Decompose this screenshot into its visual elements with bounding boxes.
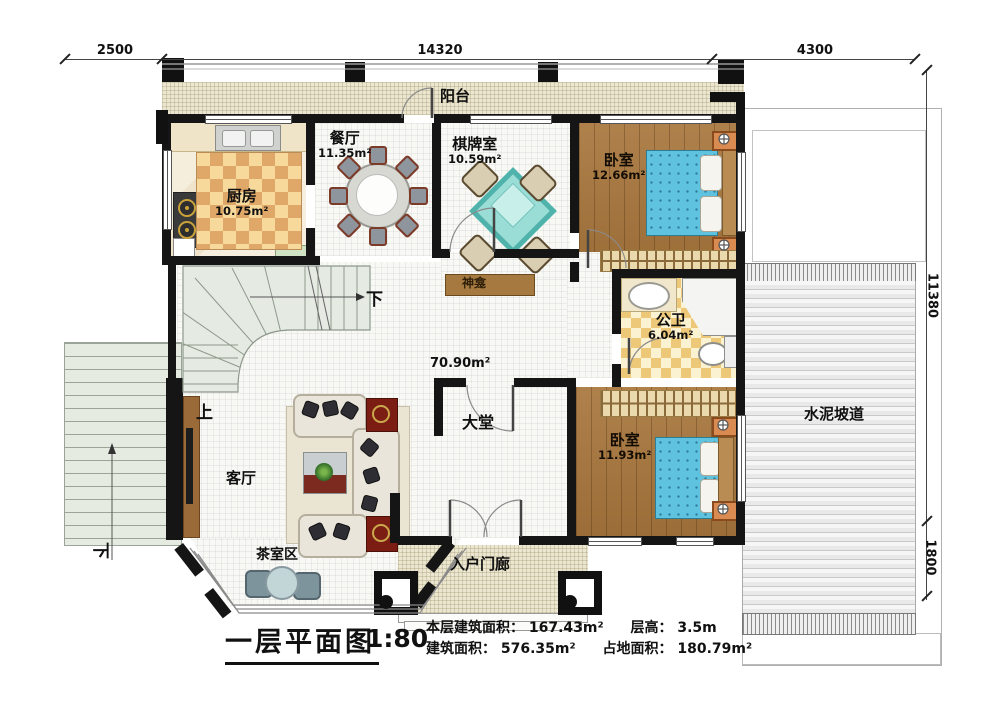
wall-segment	[567, 378, 576, 545]
wall-segment	[168, 260, 176, 380]
shrine-shelf	[445, 274, 535, 296]
hall-label: 大堂	[462, 414, 494, 432]
wall-segment	[612, 269, 621, 334]
floor-plan: 阳台 餐厅11.35m² 厨房10.75m² 棋牌室10.59m² 卧室12.6…	[0, 0, 1000, 706]
sink-basin	[222, 130, 246, 147]
dining-chair	[409, 187, 428, 205]
dim-top-mid: 14320	[405, 43, 475, 58]
wall-segment	[306, 123, 315, 185]
dining-chair	[369, 146, 387, 165]
dining-label: 餐厅11.35m²	[318, 130, 371, 160]
dim-tick	[921, 64, 932, 75]
corner-shelf	[173, 238, 195, 258]
column	[718, 60, 744, 84]
dim-right-upper: 11380	[925, 272, 940, 320]
dim-top-left: 2500	[85, 43, 145, 58]
wall-segment	[162, 256, 320, 265]
plan-scale: 1:80	[366, 624, 428, 653]
stats-row-2: 建筑面积： 576.35m² 占地面积： 180.79m²	[426, 639, 774, 660]
wall-segment	[432, 249, 450, 258]
window	[205, 115, 292, 124]
wall-segment	[434, 386, 443, 436]
dining-chair	[329, 187, 348, 205]
tea-table	[265, 566, 299, 600]
wall-segment	[612, 269, 745, 278]
bedroom2-wardrobe	[600, 390, 736, 417]
wall-jog	[156, 110, 168, 144]
bed2-pillow	[700, 442, 720, 476]
sink-basin	[250, 130, 274, 147]
column	[162, 58, 184, 82]
porch-column	[374, 571, 418, 615]
bed1-pillow	[700, 196, 722, 232]
porch-label: 入户门廊	[450, 556, 510, 573]
wall-segment	[432, 123, 441, 258]
ramp-label: 水泥坡道	[804, 406, 864, 423]
wall-jog	[736, 92, 745, 120]
nightstand	[712, 417, 738, 437]
dim-top-right: 4300	[785, 43, 845, 58]
hall-area-label: 70.90m²	[430, 356, 490, 371]
wall-segment	[612, 364, 621, 387]
plant	[315, 463, 333, 481]
bedroom1-label: 卧室12.66m²	[592, 152, 645, 182]
wall-segment	[494, 249, 579, 258]
bath-sink	[628, 282, 670, 310]
living-label: 客厅	[226, 470, 256, 487]
dim-right-lower: 1800	[923, 538, 938, 578]
bedroom2-label: 卧室11.93m²	[598, 432, 651, 462]
stats-row-1: 本层建筑面积： 167.43m² 层高： 3.5m	[426, 618, 774, 639]
column	[538, 62, 558, 82]
tea-label: 茶室区	[256, 548, 298, 564]
wall-segment	[570, 123, 579, 233]
dimension-line-top	[65, 59, 915, 60]
porch-column	[558, 571, 602, 615]
wall-segment	[306, 228, 315, 265]
sofa-cushion	[362, 466, 381, 485]
wall-segment	[570, 262, 579, 282]
window	[737, 152, 746, 232]
stair-down-label: 下	[366, 285, 383, 310]
bath-label: 公卫6.04m²	[648, 312, 693, 342]
sofa-cushion	[339, 400, 359, 420]
tv	[186, 428, 193, 504]
bed1-headboard	[722, 150, 737, 236]
sofa-cushion	[322, 400, 340, 418]
shrine-label: 神龛	[462, 277, 486, 290]
cement-ramp	[742, 281, 916, 613]
sofa-cushion	[332, 522, 351, 541]
column	[345, 62, 365, 82]
window	[737, 415, 746, 502]
window	[470, 115, 552, 124]
sofa-cushion	[359, 437, 380, 458]
sofa-cushion	[360, 494, 378, 512]
dining-chair	[369, 227, 387, 246]
ext-stair-down-label: 下	[90, 542, 115, 559]
kitchen-sink	[215, 125, 281, 151]
sofa-cushion	[301, 400, 320, 419]
terrace-inner	[752, 130, 926, 262]
stair-up-label: 上	[196, 398, 213, 423]
dining-table-top	[356, 174, 398, 216]
window	[600, 115, 712, 124]
nightstand	[712, 501, 738, 521]
window	[588, 537, 642, 546]
bed1-pillow	[700, 155, 722, 191]
window	[676, 537, 714, 546]
sofa-bottom	[298, 514, 368, 558]
plan-title: 一层平面图	[225, 620, 379, 665]
wall-segment	[166, 378, 183, 540]
ramp-fence-top	[742, 263, 916, 283]
window	[163, 150, 172, 230]
sofa-cushion	[308, 522, 328, 542]
chess-label: 棋牌室10.59m²	[448, 136, 501, 166]
balcony-label: 阳台	[440, 88, 470, 105]
plan-stats: 本层建筑面积： 167.43m² 层高： 3.5m 建筑面积： 576.35m²…	[426, 618, 774, 660]
exterior-stair	[64, 342, 182, 546]
wall-segment	[736, 269, 745, 387]
side-table	[366, 398, 398, 432]
wall-segment	[519, 536, 569, 545]
kitchen-label: 厨房10.75m²	[215, 188, 268, 218]
bath-nook-floor	[567, 278, 612, 378]
